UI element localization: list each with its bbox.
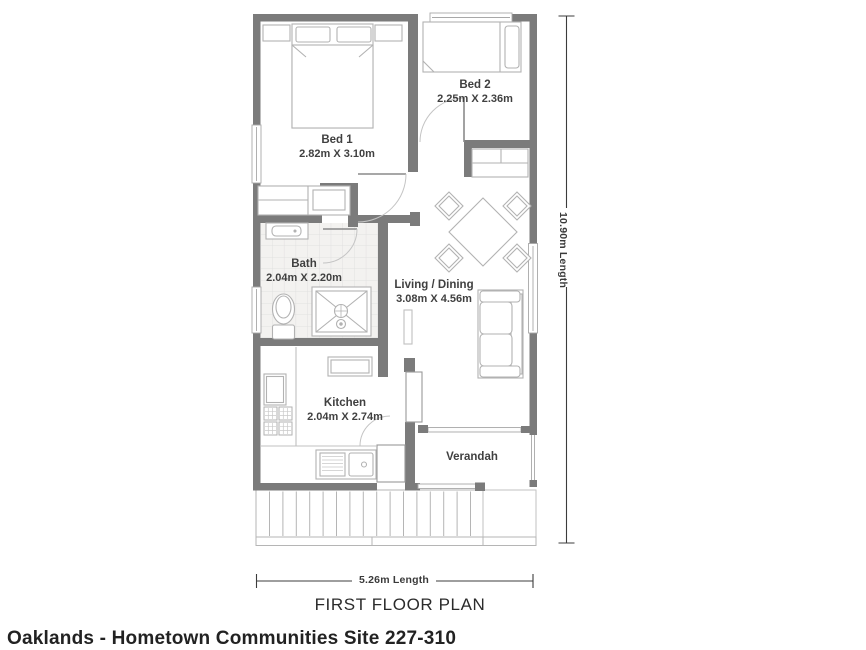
room-name: Kitchen [265,397,425,411]
room-name: Living / Dining [354,279,514,293]
bedside-table-right [375,25,402,41]
room-dimensions: 2.25m X 2.36m [405,93,545,106]
bedside-table-left [263,25,290,41]
vanity-sink-icon [266,223,308,239]
room-name: Bed 2 [405,79,545,93]
cabinet-icon [328,357,372,376]
bed1-door [358,174,406,222]
window-bed2-top [430,13,512,22]
window-bath-left [252,287,261,333]
room-label-bed2: Bed 2 2.25m X 2.36m [405,79,545,106]
room-dimensions: 2.04m X 2.20m [244,272,364,285]
deck-boards [256,490,536,546]
single-bed-icon [423,22,521,72]
width-dimension-label: 5.26m Length [344,574,444,586]
room-label-verandah: Verandah [412,451,532,465]
kitchen-sink-icon [316,450,376,479]
height-dimension-label: 10.90m Length [556,200,569,300]
double-bed-icon [292,24,373,128]
room-dimensions: 3.08m X 4.56m [354,293,514,306]
plan-title: FIRST FLOOR PLAN [290,595,510,615]
toilet-icon [273,294,295,339]
floor-plan-canvas: Bed 1 2.82m X 3.10m Bed 2 2.25m X 2.36m … [0,0,866,650]
wall-panel [404,310,412,344]
room-dimensions: 2.04m X 2.74m [265,411,425,424]
room-label-bed1: Bed 1 2.82m X 3.10m [257,134,417,161]
site-title: Oaklands - Hometown Communities Site 227… [7,628,456,650]
closet-icon [472,149,528,177]
room-name: Verandah [412,451,532,465]
wardrobe-icon [258,186,350,215]
bed1-furniture [258,24,402,215]
room-label-living-dining: Living / Dining 3.08m X 4.56m [354,279,514,306]
room-name: Bath [244,258,364,272]
room-dimensions: 2.82m X 3.10m [257,148,417,161]
room-label-kitchen: Kitchen 2.04m X 2.74m [265,397,425,424]
room-name: Bed 1 [257,134,417,148]
room-label-bath: Bath 2.04m X 2.20m [244,258,364,285]
